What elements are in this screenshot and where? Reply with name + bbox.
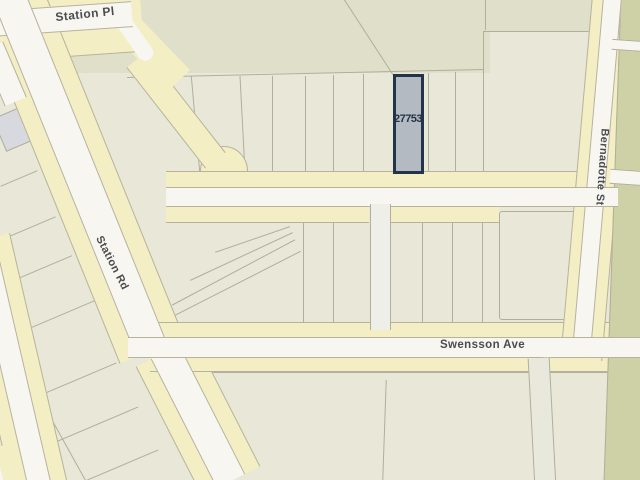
selected-parcel-27753[interactable]: 27753	[393, 74, 424, 174]
parcel-line	[305, 76, 306, 172]
parcel-line	[190, 232, 293, 281]
side-street-notch	[612, 39, 640, 52]
parcel-line	[455, 72, 456, 172]
parcel-line	[303, 222, 304, 322]
road-swensson	[128, 337, 640, 358]
parcel-line	[333, 75, 334, 172]
parcel-line	[172, 239, 295, 305]
parcel-line	[363, 74, 364, 172]
side-street-notch	[610, 169, 640, 186]
parcel-line	[333, 222, 334, 322]
parcel-line	[200, 372, 640, 373]
parcel-line	[428, 73, 429, 172]
parcel-line	[272, 76, 273, 172]
road-residential-shoulder	[166, 205, 369, 223]
road-residential	[166, 187, 618, 207]
parcel-line	[0, 170, 37, 187]
street-label-swensson-ave: Swensson Ave	[435, 339, 530, 351]
parcel-line	[452, 222, 453, 322]
parcel-line	[422, 222, 423, 322]
parcel-line	[51, 406, 139, 444]
parcel-line	[482, 222, 483, 322]
parcel-line	[483, 31, 484, 172]
map-canvas[interactable]: 27753 Station Pl Station Rd Bernadotte S…	[0, 0, 640, 480]
parcel-line	[485, 0, 486, 30]
road-swensson-shoulder	[150, 356, 640, 372]
road-vertical-connector	[370, 204, 391, 330]
road-residential-shoulder	[389, 205, 499, 223]
road-track-south	[528, 358, 557, 480]
parcel-line	[382, 380, 386, 480]
selected-parcel-id: 27753	[390, 113, 426, 125]
